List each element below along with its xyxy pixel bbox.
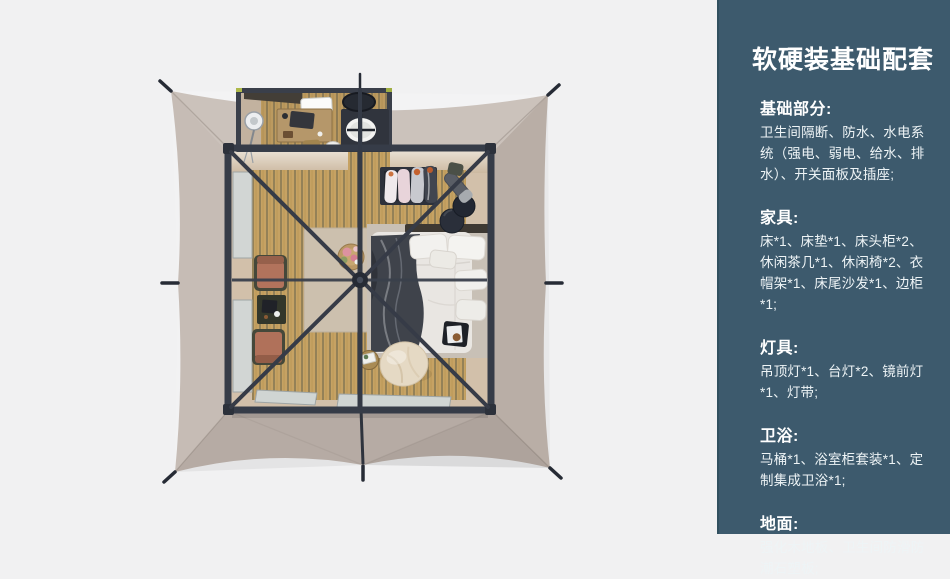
vanity-mirror-box	[289, 111, 315, 129]
snack	[264, 315, 268, 319]
section-basics: 基础部分: 卫生间隔断、防水、水电系统（强电、弱电、给水、排水）、开关面板及插座…	[760, 95, 934, 185]
section-furniture: 家具: 床*1、床垫*1、床头柜*2、休闲茶几*1、休闲椅*2、衣帽架*1、床尾…	[760, 204, 934, 315]
window-left-upper	[233, 172, 252, 258]
section-bathroom: 卫浴: 马桶*1、浴室柜套装*1、定制集成卫浴*1;	[760, 422, 934, 491]
tent-floorplan-render	[0, 0, 717, 534]
chair-seat	[255, 332, 282, 358]
stake-top-right	[548, 85, 559, 95]
pillow	[455, 299, 486, 321]
window-left-lower	[233, 300, 252, 392]
stake-top-left	[160, 81, 171, 91]
section-furniture-body: 床*1、床垫*1、床头柜*2、休闲茶几*1、休闲椅*2、衣帽架*1、床尾沙发*1…	[760, 231, 934, 315]
window-bottom-left	[255, 390, 317, 405]
hat	[414, 169, 420, 175]
stake-bottom-left	[164, 472, 175, 482]
canvas-shade-right	[492, 95, 550, 468]
lounge-chair-upper	[254, 255, 287, 291]
flower	[343, 248, 352, 257]
bottom-guy-pole	[361, 409, 363, 464]
perfume	[282, 113, 288, 119]
page: 软硬装基础配套 基础部分: 卫生间隔断、防水、水电系统（强电、弱电、给水、排水）…	[0, 0, 950, 534]
section-bathroom-body: 马桶*1、浴室柜套装*1、定制集成卫浴*1;	[760, 449, 934, 491]
section-lighting-heading: 灯具:	[760, 334, 934, 358]
section-flooring-heading: 地面:	[760, 510, 934, 534]
info-panel: 软硬装基础配套 基础部分: 卫生间隔断、防水、水电系统（强电、弱电、给水、排水）…	[717, 0, 950, 534]
bed	[367, 224, 491, 358]
section-flooring-body: 强化木地板、卫生间防滑防潮石塑板;	[760, 537, 934, 579]
pillow	[429, 249, 457, 269]
frame-hub-center	[357, 277, 363, 283]
cup	[274, 311, 280, 317]
corner-accent	[386, 88, 392, 92]
tray-on-table	[262, 300, 278, 314]
panel-title: 软硬装基础配套	[752, 40, 934, 76]
clothes-rack	[380, 166, 438, 205]
chair-side-table	[257, 295, 286, 324]
section-basics-heading: 基础部分:	[760, 95, 934, 119]
bathroom	[236, 88, 392, 163]
hat	[427, 167, 433, 173]
chair-seat	[257, 262, 284, 288]
section-lighting: 灯具: 吊顶灯*1、台灯*2、镜前灯*1、灯带;	[760, 334, 934, 403]
book-art	[364, 355, 369, 360]
section-lighting-body: 吊顶灯*1、台灯*2、镜前灯*1、灯带;	[760, 361, 934, 403]
stake-bottom-right	[550, 468, 561, 478]
chair-back	[257, 256, 284, 264]
garment	[397, 169, 410, 203]
vanity-tray	[283, 131, 293, 138]
section-flooring: 地面: 强化木地板、卫生间防滑防潮石塑板;	[760, 510, 934, 579]
section-basics-body: 卫生间隔断、防水、水电系统（强电、弱电、给水、排水）、开关面板及插座;	[760, 122, 934, 185]
hat	[389, 172, 394, 177]
section-bathroom-heading: 卫浴:	[760, 422, 934, 446]
soap-dish	[318, 132, 323, 137]
tray-table	[442, 321, 469, 347]
section-furniture-heading: 家具:	[760, 204, 934, 228]
canvas-shade-left	[171, 91, 228, 472]
corner-accent	[236, 88, 242, 92]
